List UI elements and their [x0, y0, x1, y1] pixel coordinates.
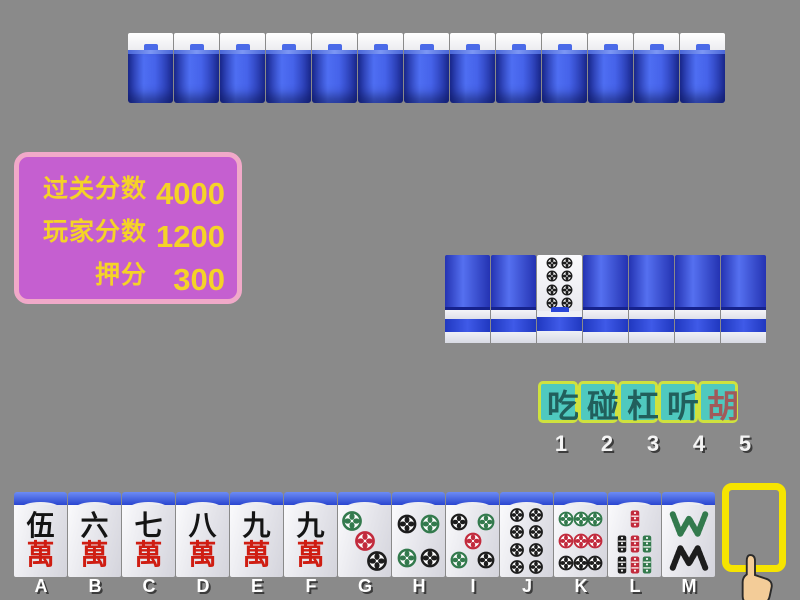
- tile-back-body: [445, 255, 490, 310]
- tile-top-edge: [608, 492, 661, 505]
- tile-base-white: [445, 310, 490, 319]
- tile-back-tab: [144, 44, 158, 50]
- tile-face: [392, 505, 445, 577]
- tile-back-body: [542, 54, 587, 103]
- action-buttons: 吃碰杠听胡: [538, 381, 738, 423]
- character-numeral: 九: [242, 512, 270, 541]
- tile-back-top-edge: [634, 33, 679, 50]
- tile-base-blue: [583, 319, 628, 332]
- tile-back-tab: [420, 44, 434, 50]
- tile-base-white: [675, 332, 720, 343]
- tile-base-blue: [491, 319, 536, 332]
- tile-face: [500, 505, 553, 577]
- hand-tile-I[interactable]: [446, 492, 499, 577]
- dot-r: [355, 531, 375, 551]
- tile-face: [662, 505, 715, 577]
- tile-base-blue: [537, 317, 582, 331]
- tile-base-white: [675, 310, 720, 319]
- action-number-1: 1: [538, 431, 584, 457]
- tile-back-body: [588, 54, 633, 103]
- tile-top-edge: [662, 492, 715, 505]
- tile-base-white: [721, 332, 766, 343]
- dot-r: [573, 534, 588, 549]
- dot-g: [421, 514, 440, 533]
- meld-tile-back: [445, 255, 490, 343]
- hand-letter-H: H: [392, 576, 446, 597]
- tile-back-body: [675, 255, 720, 310]
- dot-k: [367, 551, 387, 571]
- tile-back-body: [266, 54, 311, 103]
- hand-letter-B: B: [68, 576, 122, 597]
- dot-k: [573, 555, 588, 570]
- tile-back-body: [629, 255, 674, 310]
- tile-back-top-edge: [358, 33, 403, 50]
- tile-face: [537, 255, 582, 311]
- tile-back-top-edge: [680, 33, 725, 50]
- bamboo-stick-k: [617, 556, 627, 574]
- bamboo-m-black: [669, 545, 709, 571]
- hand-letter-M: M: [662, 576, 716, 597]
- hand-letter-L: L: [608, 576, 662, 597]
- action-button-2[interactable]: 碰: [578, 381, 618, 423]
- tile-back-tab: [282, 44, 296, 50]
- tile-top-edge: [176, 492, 229, 505]
- character-numeral: 九: [296, 512, 324, 541]
- action-number-2: 2: [584, 431, 630, 457]
- hand-letter-I: I: [446, 576, 500, 597]
- player-hand-row: 伍萬六萬七萬八萬九萬九萬: [14, 492, 716, 577]
- dot-k: [510, 560, 524, 574]
- hand-tile-J[interactable]: [500, 492, 553, 577]
- opponent-tile-back: [496, 33, 541, 103]
- tile-top-edge: [68, 492, 121, 505]
- action-button-1[interactable]: 吃: [538, 381, 578, 423]
- tile-base-white: [537, 311, 582, 317]
- tile-top-edge: [338, 492, 391, 505]
- opponent-tile-back: [680, 33, 725, 103]
- tile-top-edge: [392, 492, 445, 505]
- hand-tile-B[interactable]: 六萬: [68, 492, 121, 577]
- pointing-hand-cursor-icon: [735, 552, 775, 600]
- opponent-tile-back: [128, 33, 173, 103]
- tile-back-body: [220, 54, 265, 103]
- tile-face: 七萬: [122, 505, 175, 577]
- tile-back-top-edge: [174, 33, 219, 50]
- bamboo-w-green: [669, 511, 709, 537]
- tile-back-tab: [604, 44, 618, 50]
- tile-back-tab: [236, 44, 250, 50]
- dot-g: [558, 512, 573, 527]
- bamboo-stick-g: [642, 535, 652, 553]
- score-row-pass: 过关分数 4000: [27, 169, 225, 212]
- opponent-tile-back: [450, 33, 495, 103]
- tile-face: 九萬: [284, 505, 337, 577]
- score-row-player: 玩家分数 1200: [27, 212, 225, 255]
- tile-base-white: [629, 332, 674, 343]
- dot-g: [573, 512, 588, 527]
- hand-letter-E: E: [230, 576, 284, 597]
- tile-base-white: [491, 310, 536, 319]
- opponent-tile-back: [634, 33, 679, 103]
- player-score-label: 玩家分数: [27, 212, 147, 248]
- bamboo-stick-g: [642, 556, 652, 574]
- meld-tile-back: [629, 255, 674, 343]
- tile-back-body: [680, 54, 725, 103]
- tile-base-white: [537, 331, 582, 343]
- tile-back-body: [128, 54, 173, 103]
- bamboo-stick-r: [630, 535, 640, 553]
- dot-k: [546, 271, 557, 282]
- tile-base-white: [445, 332, 490, 343]
- character-numeral: 伍: [26, 512, 54, 541]
- dot-k: [562, 284, 573, 295]
- tile-back-body: [174, 54, 219, 103]
- hand-tile-G[interactable]: [338, 492, 391, 577]
- dot-g: [450, 551, 467, 568]
- hand-tile-D[interactable]: 八萬: [176, 492, 229, 577]
- tile-back-body: [450, 54, 495, 103]
- bet-score-value: 300: [147, 255, 225, 295]
- hand-tile-E[interactable]: 九萬: [230, 492, 283, 577]
- dot-k: [510, 508, 524, 522]
- hand-tile-C[interactable]: 七萬: [122, 492, 175, 577]
- dot-g: [478, 514, 495, 531]
- tile-top-edge: [122, 492, 175, 505]
- bamboo-stick-r: [630, 510, 640, 528]
- hand-tile-A[interactable]: 伍萬: [14, 492, 67, 577]
- meld-row: [445, 255, 767, 343]
- dot-k: [546, 257, 557, 268]
- dot-g: [588, 512, 603, 527]
- dot-k: [510, 543, 524, 557]
- hand-letter-K: K: [554, 576, 608, 597]
- character-wan: 萬: [26, 541, 54, 570]
- tile-back-body: [721, 255, 766, 310]
- tile-face: 伍萬: [14, 505, 67, 577]
- tile-top-edge: [500, 492, 553, 505]
- dot-r: [464, 533, 481, 550]
- tile-back-tab: [650, 44, 664, 50]
- hand-tile-F[interactable]: 九萬: [284, 492, 337, 577]
- tile-back-body: [634, 54, 679, 103]
- meld-tile-dots-8: [537, 255, 582, 343]
- dot-k: [529, 525, 543, 539]
- tile-face: 八萬: [176, 505, 229, 577]
- dot-k: [450, 514, 467, 531]
- meld-tile-back: [583, 255, 628, 343]
- character-numeral: 八: [188, 512, 216, 541]
- tile-base-blue: [675, 319, 720, 332]
- tile-top-edge: [284, 492, 337, 505]
- tile-base-notch: [551, 307, 569, 312]
- dot-k: [421, 549, 440, 568]
- action-number-5: 5: [722, 431, 768, 457]
- dot-k: [562, 257, 573, 268]
- dot-r: [558, 534, 573, 549]
- meld-tile-back: [675, 255, 720, 343]
- tile-back-top-edge: [312, 33, 357, 50]
- tile-back-body: [583, 255, 628, 310]
- tile-face: [338, 505, 391, 577]
- tile-back-tab: [558, 44, 572, 50]
- opponent-tile-back: [266, 33, 311, 103]
- player-score-value: 1200: [147, 212, 225, 252]
- dot-k: [529, 543, 543, 557]
- dot-k: [588, 555, 603, 570]
- action-number-4: 4: [676, 431, 722, 457]
- tile-base-blue: [629, 319, 674, 332]
- tile-back-top-edge: [128, 33, 173, 50]
- bet-score-label: 押分: [27, 255, 147, 291]
- bamboo-stick-k: [617, 535, 627, 553]
- tile-base-white: [491, 332, 536, 343]
- hand-letter-J: J: [500, 576, 554, 597]
- hand-letter-D: D: [176, 576, 230, 597]
- mahjong-game-table: 过关分数 4000 玩家分数 1200 押分 300 吃碰杠听胡 12345 伍…: [0, 0, 800, 600]
- action-button-3[interactable]: 杠: [618, 381, 658, 423]
- tile-back-top-edge: [542, 33, 587, 50]
- opponent-tile-back: [588, 33, 633, 103]
- dot-g: [397, 549, 416, 568]
- tile-back-top-edge: [450, 33, 495, 50]
- character-wan: 萬: [188, 541, 216, 570]
- hand-tile-M[interactable]: [662, 492, 715, 577]
- tile-back-top-edge: [266, 33, 311, 50]
- character-wan: 萬: [242, 541, 270, 570]
- pass-score-label: 过关分数: [27, 169, 147, 205]
- tile-face: [608, 505, 661, 577]
- tile-top-edge: [14, 492, 67, 505]
- dot-k: [558, 555, 573, 570]
- hand-letter-C: C: [122, 576, 176, 597]
- hand-tile-H[interactable]: [392, 492, 445, 577]
- tile-back-tab: [190, 44, 204, 50]
- tile-top-edge: [446, 492, 499, 505]
- character-numeral: 七: [134, 512, 162, 541]
- tile-back-tab: [466, 44, 480, 50]
- opponent-tile-back: [404, 33, 449, 103]
- dot-k: [562, 271, 573, 282]
- hand-tile-K[interactable]: [554, 492, 607, 577]
- character-numeral: 六: [80, 512, 108, 541]
- hand-letter-F: F: [284, 576, 338, 597]
- action-button-5[interactable]: 胡: [698, 381, 738, 423]
- opponent-tile-back: [312, 33, 357, 103]
- tile-back-top-edge: [404, 33, 449, 50]
- tile-base-white: [583, 332, 628, 343]
- opponent-tile-back: [174, 33, 219, 103]
- dot-g: [342, 511, 362, 531]
- tile-back-top-edge: [496, 33, 541, 50]
- tile-back-tab: [328, 44, 342, 50]
- dot-k: [529, 560, 543, 574]
- character-wan: 萬: [296, 541, 324, 570]
- dot-k: [510, 525, 524, 539]
- opponent-hand-row: [128, 33, 726, 103]
- tile-base-white: [629, 310, 674, 319]
- tile-back-tab: [374, 44, 388, 50]
- meld-tile-back: [491, 255, 536, 343]
- tile-back-top-edge: [220, 33, 265, 50]
- hand-letter-labels: ABCDEFGHIJKLM: [14, 576, 716, 597]
- tile-back-body: [404, 54, 449, 103]
- bamboo-stick-r: [630, 556, 640, 574]
- action-number-3: 3: [630, 431, 676, 457]
- score-panel: 过关分数 4000 玩家分数 1200 押分 300: [14, 152, 242, 304]
- dot-k: [397, 514, 416, 533]
- dot-k: [546, 284, 557, 295]
- tile-back-body: [496, 54, 541, 103]
- tile-back-top-edge: [588, 33, 633, 50]
- meld-tile-back: [721, 255, 766, 343]
- hand-letter-A: A: [14, 576, 68, 597]
- hand-tile-L[interactable]: [608, 492, 661, 577]
- character-wan: 萬: [134, 541, 162, 570]
- tile-back-body: [491, 255, 536, 310]
- tile-top-edge: [230, 492, 283, 505]
- tile-face: 六萬: [68, 505, 121, 577]
- tile-base-white: [721, 310, 766, 319]
- opponent-tile-back: [542, 33, 587, 103]
- action-button-4[interactable]: 听: [658, 381, 698, 423]
- dot-k: [529, 508, 543, 522]
- tile-back-tab: [512, 44, 526, 50]
- character-wan: 萬: [80, 541, 108, 570]
- tile-base-white: [583, 310, 628, 319]
- score-row-bet: 押分 300: [27, 255, 225, 298]
- tile-back-tab: [696, 44, 710, 50]
- tile-base-blue: [721, 319, 766, 332]
- action-button-numbers: 12345: [538, 431, 768, 457]
- tile-face: 九萬: [230, 505, 283, 577]
- dot-r: [588, 534, 603, 549]
- tile-back-body: [312, 54, 357, 103]
- tile-back-body: [358, 54, 403, 103]
- opponent-tile-back: [358, 33, 403, 103]
- hand-letter-G: G: [338, 576, 392, 597]
- opponent-tile-back: [220, 33, 265, 103]
- pass-score-value: 4000: [147, 169, 225, 209]
- tile-face: [554, 505, 607, 577]
- tile-top-edge: [554, 492, 607, 505]
- tile-face: [446, 505, 499, 577]
- dot-k: [478, 551, 495, 568]
- tile-base-blue: [445, 319, 490, 332]
